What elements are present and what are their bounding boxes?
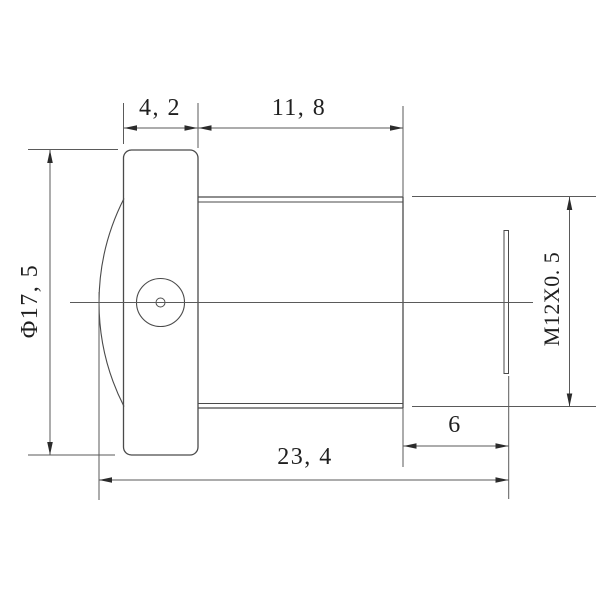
arrow-rear-right xyxy=(496,443,509,449)
arrow-diameter-top xyxy=(47,150,53,163)
dim-label-rear-length: 6 xyxy=(448,412,462,438)
arrow-rear-left xyxy=(404,443,417,449)
dim-label-cap-width: 4, 2 xyxy=(139,95,181,121)
dim-label-barrel-length: 11, 8 xyxy=(272,95,327,121)
arrow-total-left xyxy=(99,477,112,483)
dim-label-thread: M12X0. 5 xyxy=(539,252,564,346)
arrow-total-right xyxy=(496,477,509,483)
arrow-cap-right xyxy=(185,125,198,131)
dim-label-total-length: 23, 4 xyxy=(277,444,333,470)
arrow-thread-top xyxy=(567,197,573,210)
arrow-barrel-left xyxy=(199,125,212,131)
dim-label-diameter: Φ17, 5 xyxy=(17,264,43,339)
lens-outline xyxy=(70,150,533,455)
rear-thread-end xyxy=(504,231,509,374)
arrow-barrel-right xyxy=(390,125,403,131)
technical-drawing: 4, 2 11, 8 Φ17, 5 M12X0. 5 6 23, 4 xyxy=(0,0,600,600)
dimension-arrows xyxy=(47,125,572,483)
arrow-diameter-bottom xyxy=(47,442,53,455)
arrow-cap-left xyxy=(124,125,137,131)
arrow-thread-bottom xyxy=(567,394,573,407)
dimension-annotations xyxy=(28,103,596,500)
drawing-canvas: 4, 2 11, 8 Φ17, 5 M12X0. 5 6 23, 4 xyxy=(0,0,600,600)
